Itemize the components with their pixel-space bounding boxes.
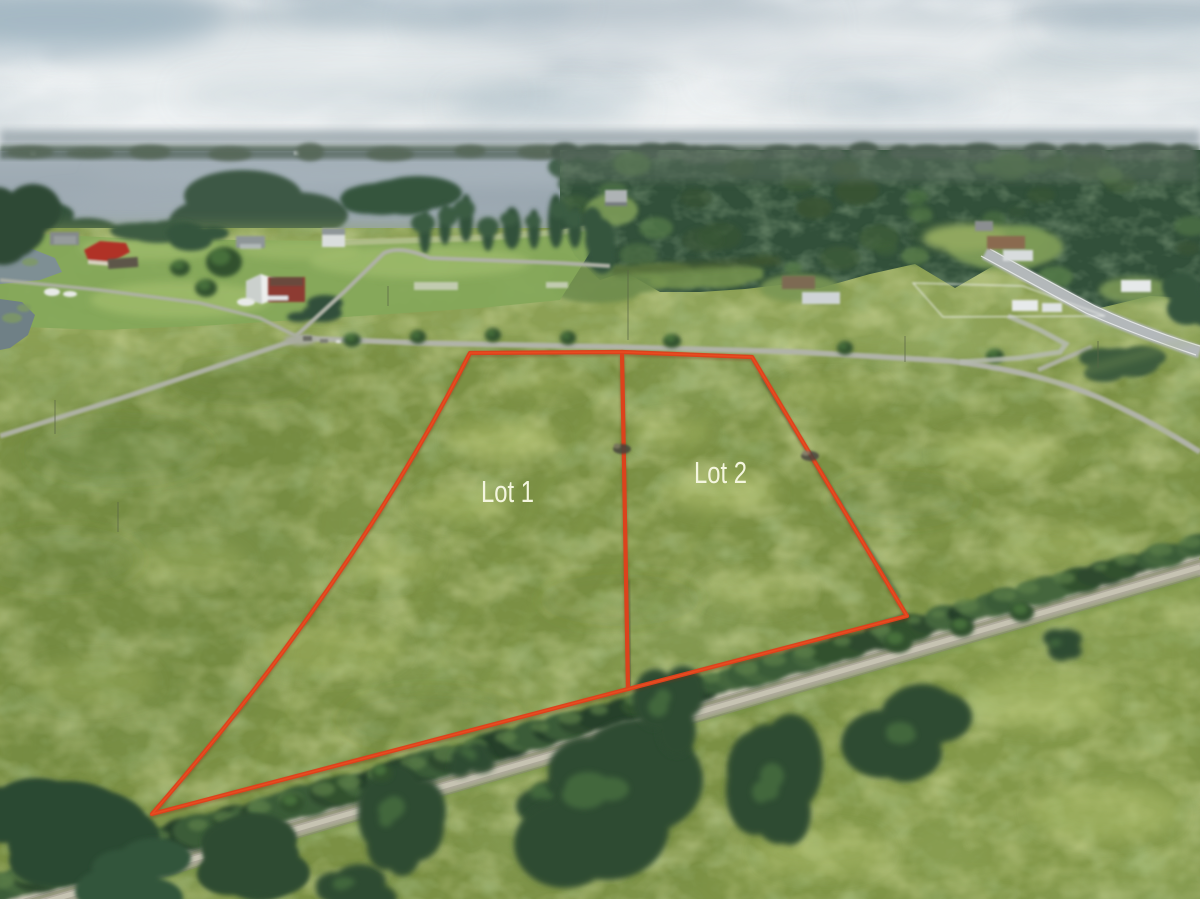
svg-text:Lot 1: Lot 1 — [481, 474, 534, 509]
svg-text:Lot 2: Lot 2 — [694, 455, 747, 490]
